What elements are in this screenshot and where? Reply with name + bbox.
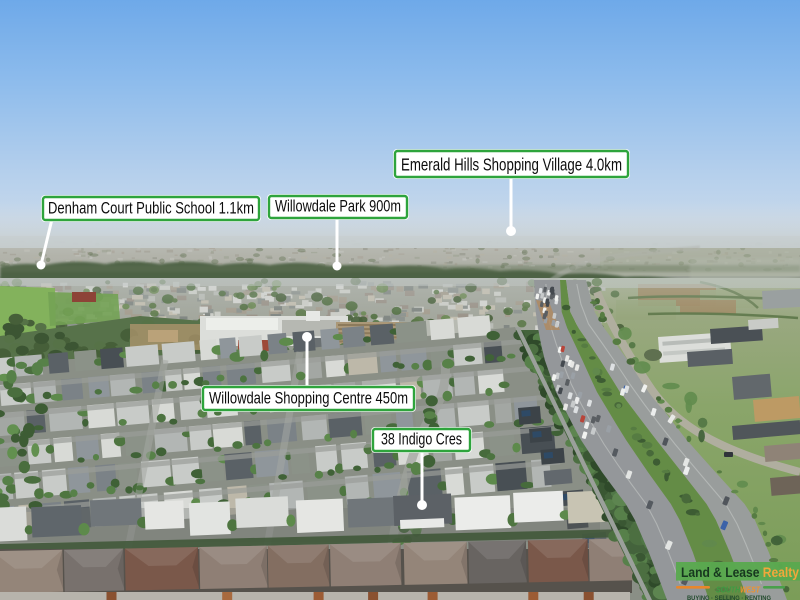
svg-text:38 Indigo Cres: 38 Indigo Cres	[381, 431, 462, 449]
svg-text:Willowdale Shopping Centre 450: Willowdale Shopping Centre 450m	[209, 390, 408, 408]
svg-text:Willowdale Park 900m: Willowdale Park 900m	[275, 198, 401, 216]
svg-text:Emerald Hills Shopping Village: Emerald Hills Shopping Village 4.0km	[401, 155, 622, 175]
svg-text:Land & Lease Realty: Land & Lease Realty	[681, 565, 799, 580]
svg-text:Denham Court Public School 1.1: Denham Court Public School 1.1km	[48, 200, 254, 218]
svg-text:BUYING · SELLING · RENTING: BUYING · SELLING · RENTING	[687, 595, 771, 600]
svg-text:SOUTHWEST: SOUTHWEST	[716, 584, 761, 594]
